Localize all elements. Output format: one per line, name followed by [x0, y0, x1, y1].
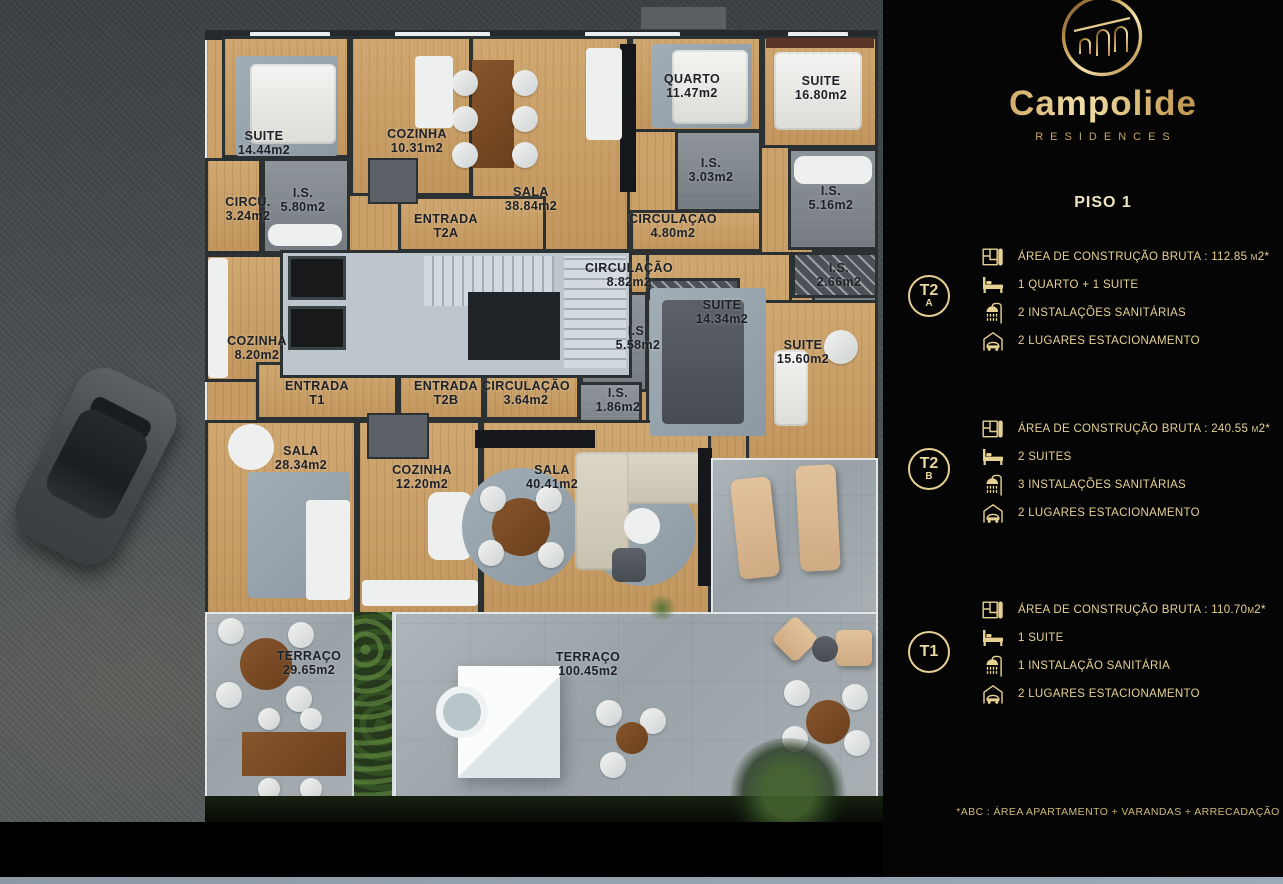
- sofa: [306, 500, 350, 600]
- unit-badge-t2a: T2 A: [908, 275, 950, 317]
- terrace-armchair: [836, 630, 872, 666]
- dining-chair: [512, 142, 538, 168]
- media-wall: [698, 448, 712, 586]
- unit-specs-t1: ÁREA DE CONSTRUÇÃO BRUTA : 110.70m2* 1 S…: [981, 596, 1266, 708]
- garage-icon: [981, 330, 1005, 352]
- garage-icon: [981, 502, 1005, 524]
- spec-row: 3 INSTALAÇÕES SANITÁRIAS: [981, 471, 1270, 499]
- unit-badge-t1: T1: [908, 631, 950, 673]
- brand-subtitle: RESIDENCES: [883, 131, 1283, 143]
- terrace-chair: [600, 752, 626, 778]
- campolide-floorplan-page: SUITE14.44m2 COZINHA10.31m2 SALA38.84m2 …: [0, 0, 1283, 884]
- terrace-chair: [218, 618, 244, 644]
- bottom-edge-strip: [0, 877, 1283, 884]
- bed-icon: [981, 274, 1005, 296]
- shower-icon: [981, 474, 1005, 496]
- terrace-chair: [258, 708, 280, 730]
- shower-icon: [981, 655, 1005, 677]
- room-label: COZINHA12.20m2: [372, 464, 472, 492]
- terrace-chair: [300, 708, 322, 730]
- shower-icon: [981, 302, 1005, 324]
- room-label: I.S.2.66m2: [789, 262, 883, 290]
- room-label: CIRCULAÇÃO8.82m2: [579, 262, 679, 290]
- terrace-table: [616, 722, 648, 754]
- room-label: QUARTO11.47m2: [642, 73, 742, 101]
- kitchen-counter: [362, 580, 478, 606]
- spec-row: ÁREA DE CONSTRUÇÃO BRUTA : 110.70m2*: [981, 596, 1266, 624]
- bathtub: [268, 224, 342, 246]
- room-label: I.S.1.86m2: [568, 387, 668, 415]
- dining-chair: [512, 106, 538, 132]
- room-label: SUITE14.34m2: [672, 299, 772, 327]
- plant: [648, 594, 676, 622]
- spec-row: 1 INSTALAÇÃO SANITÁRIA: [981, 652, 1266, 680]
- dining-table: [472, 60, 514, 168]
- room-label: I.S.5.58m2: [588, 325, 688, 353]
- spec-row: 2 LUGARES ESTACIONAMENTO: [981, 327, 1269, 355]
- room-label: SUITE15.60m2: [753, 339, 853, 367]
- footnote: *ABC : ÁREA APARTAMENTO + VARANDAS + ARR…: [953, 806, 1283, 818]
- spec-row: 1 QUARTO + 1 SUITE: [981, 271, 1269, 299]
- armchair: [612, 548, 646, 582]
- garage-icon: [981, 683, 1005, 705]
- dining-chair: [512, 70, 538, 96]
- bottom-black-band: [0, 822, 883, 884]
- floorplan-icon: [981, 246, 1005, 268]
- room-label: SALA40.41m2: [502, 464, 602, 492]
- terrace-chair: [784, 680, 810, 706]
- media-wall: [620, 44, 636, 192]
- bed-icon: [981, 627, 1005, 649]
- bed-icon: [981, 446, 1005, 468]
- room-label: COZINHA10.31m2: [367, 128, 467, 156]
- terrace-chair: [288, 622, 314, 648]
- info-panel: Campolide RESIDENCES PISO 1 T2 A ÁREA DE…: [883, 0, 1283, 884]
- floorplan-icon: [981, 418, 1005, 440]
- terrace-chair: [842, 684, 868, 710]
- utility: [368, 158, 418, 204]
- room-label: I.S.5.16m2: [781, 185, 881, 213]
- room-label: SALA28.34m2: [251, 445, 351, 473]
- room-label: CIRCULAÇÃO3.64m2: [476, 380, 576, 408]
- room-label: TERRAÇO100.45m2: [538, 651, 638, 679]
- sofa: [586, 48, 622, 140]
- unit-badge-t2b: T2 B: [908, 448, 950, 490]
- floorplan-scene: SUITE14.44m2 COZINHA10.31m2 SALA38.84m2 …: [0, 0, 883, 884]
- spec-row: 2 SUITES: [981, 443, 1270, 471]
- headboard: [766, 38, 874, 48]
- brand-name: Campolide: [883, 84, 1283, 124]
- room-label: TERRAÇO29.65m2: [259, 650, 359, 678]
- roof-structure: [640, 6, 727, 30]
- spec-row: 1 SUITE: [981, 624, 1266, 652]
- spec-row: ÁREA DE CONSTRUÇÃO BRUTA : 112.85 m2*: [981, 243, 1269, 271]
- room-label: SALA38.84m2: [481, 186, 581, 214]
- terrace-chair: [844, 730, 870, 756]
- unit-specs-t2a: ÁREA DE CONSTRUÇÃO BRUTA : 112.85 m2* 1 …: [981, 243, 1269, 355]
- room-label: CIRCULAÇÃO4.80m2: [623, 213, 723, 241]
- room-label: CIRCU.3.24m2: [198, 196, 298, 224]
- hedge-planter: [352, 612, 394, 800]
- elevator: [288, 256, 346, 300]
- kitchen-island: [415, 56, 453, 128]
- campolide-logo-icon: [1060, 0, 1144, 78]
- floorplan-icon: [981, 599, 1005, 621]
- bathtub: [794, 156, 872, 184]
- terrace-chair: [216, 682, 242, 708]
- room-label: I.S.3.03m2: [661, 157, 761, 185]
- terrace-table: [806, 700, 850, 744]
- spec-row: 2 LUGARES ESTACIONAMENTO: [981, 680, 1266, 708]
- side-table: [624, 508, 660, 544]
- dining-chair: [478, 540, 504, 566]
- room-label: SUITE16.80m2: [771, 75, 871, 103]
- spec-row: 2 LUGARES ESTACIONAMENTO: [981, 499, 1270, 527]
- unit-specs-t2b: ÁREA DE CONSTRUÇÃO BRUTA : 240.55 m2* 2 …: [981, 415, 1270, 527]
- room-label: ENTRADAT2A: [396, 213, 496, 241]
- dining-chair: [538, 542, 564, 568]
- fountain: [436, 686, 488, 738]
- utility: [367, 413, 429, 459]
- terrace-dining-table: [242, 732, 346, 776]
- terrace-chair: [596, 700, 622, 726]
- spec-row: ÁREA DE CONSTRUÇÃO BRUTA : 240.55 m2*: [981, 415, 1270, 443]
- room-label: SUITE14.44m2: [214, 130, 314, 158]
- sun-lounger: [795, 464, 840, 572]
- sideboard: [475, 430, 595, 448]
- room-label: ENTRADAT1: [267, 380, 367, 408]
- room-label: COZINHA8.20m2: [207, 335, 307, 363]
- terrace-side-table: [812, 636, 838, 662]
- stair-landing: [468, 292, 560, 360]
- spec-row: 2 INSTALAÇÕES SANITÁRIAS: [981, 299, 1269, 327]
- floor-title: PISO 1: [883, 194, 1283, 212]
- dining-chair: [452, 70, 478, 96]
